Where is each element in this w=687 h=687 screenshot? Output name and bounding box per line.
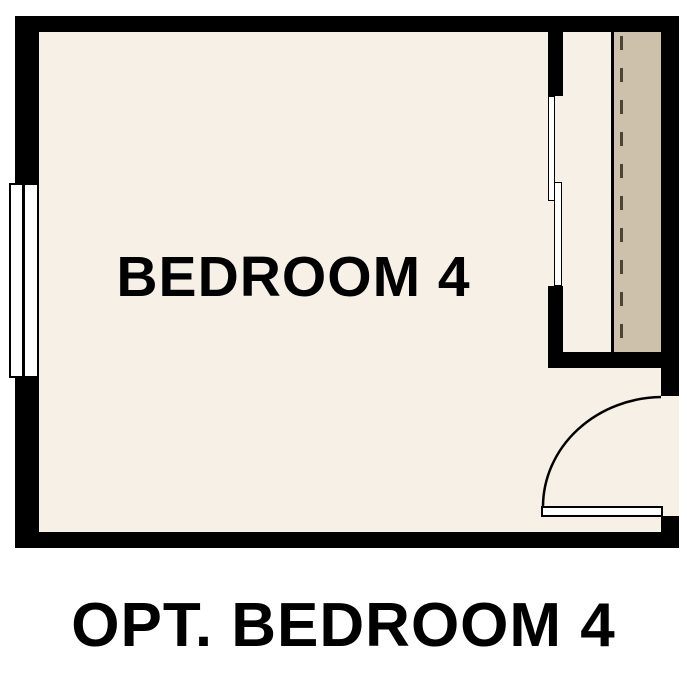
- sliding-door-panel-back: [554, 182, 562, 286]
- closet-partition-wall-upper: [548, 32, 563, 96]
- wall-top: [15, 16, 679, 32]
- wardrobe-shelf: [611, 32, 661, 352]
- room-label: BEDROOM 4: [39, 244, 548, 310]
- wall-right-lower: [661, 516, 679, 548]
- plan-caption: OPT. BEDROOM 4: [0, 590, 687, 661]
- window-divider-line: [22, 185, 25, 376]
- closet-rod-dashed-line: [620, 36, 623, 348]
- wall-right-upper: [661, 16, 679, 396]
- closet-partition-wall-lower: [548, 286, 563, 352]
- closet-bottom-wall: [548, 352, 679, 368]
- door-opening-floor: [661, 396, 679, 516]
- floorplan-page: BEDROOM 4 OPT. BEDROOM 4: [0, 0, 687, 687]
- wall-bottom: [15, 532, 679, 548]
- window: [9, 183, 39, 378]
- door-leaf: [541, 506, 663, 517]
